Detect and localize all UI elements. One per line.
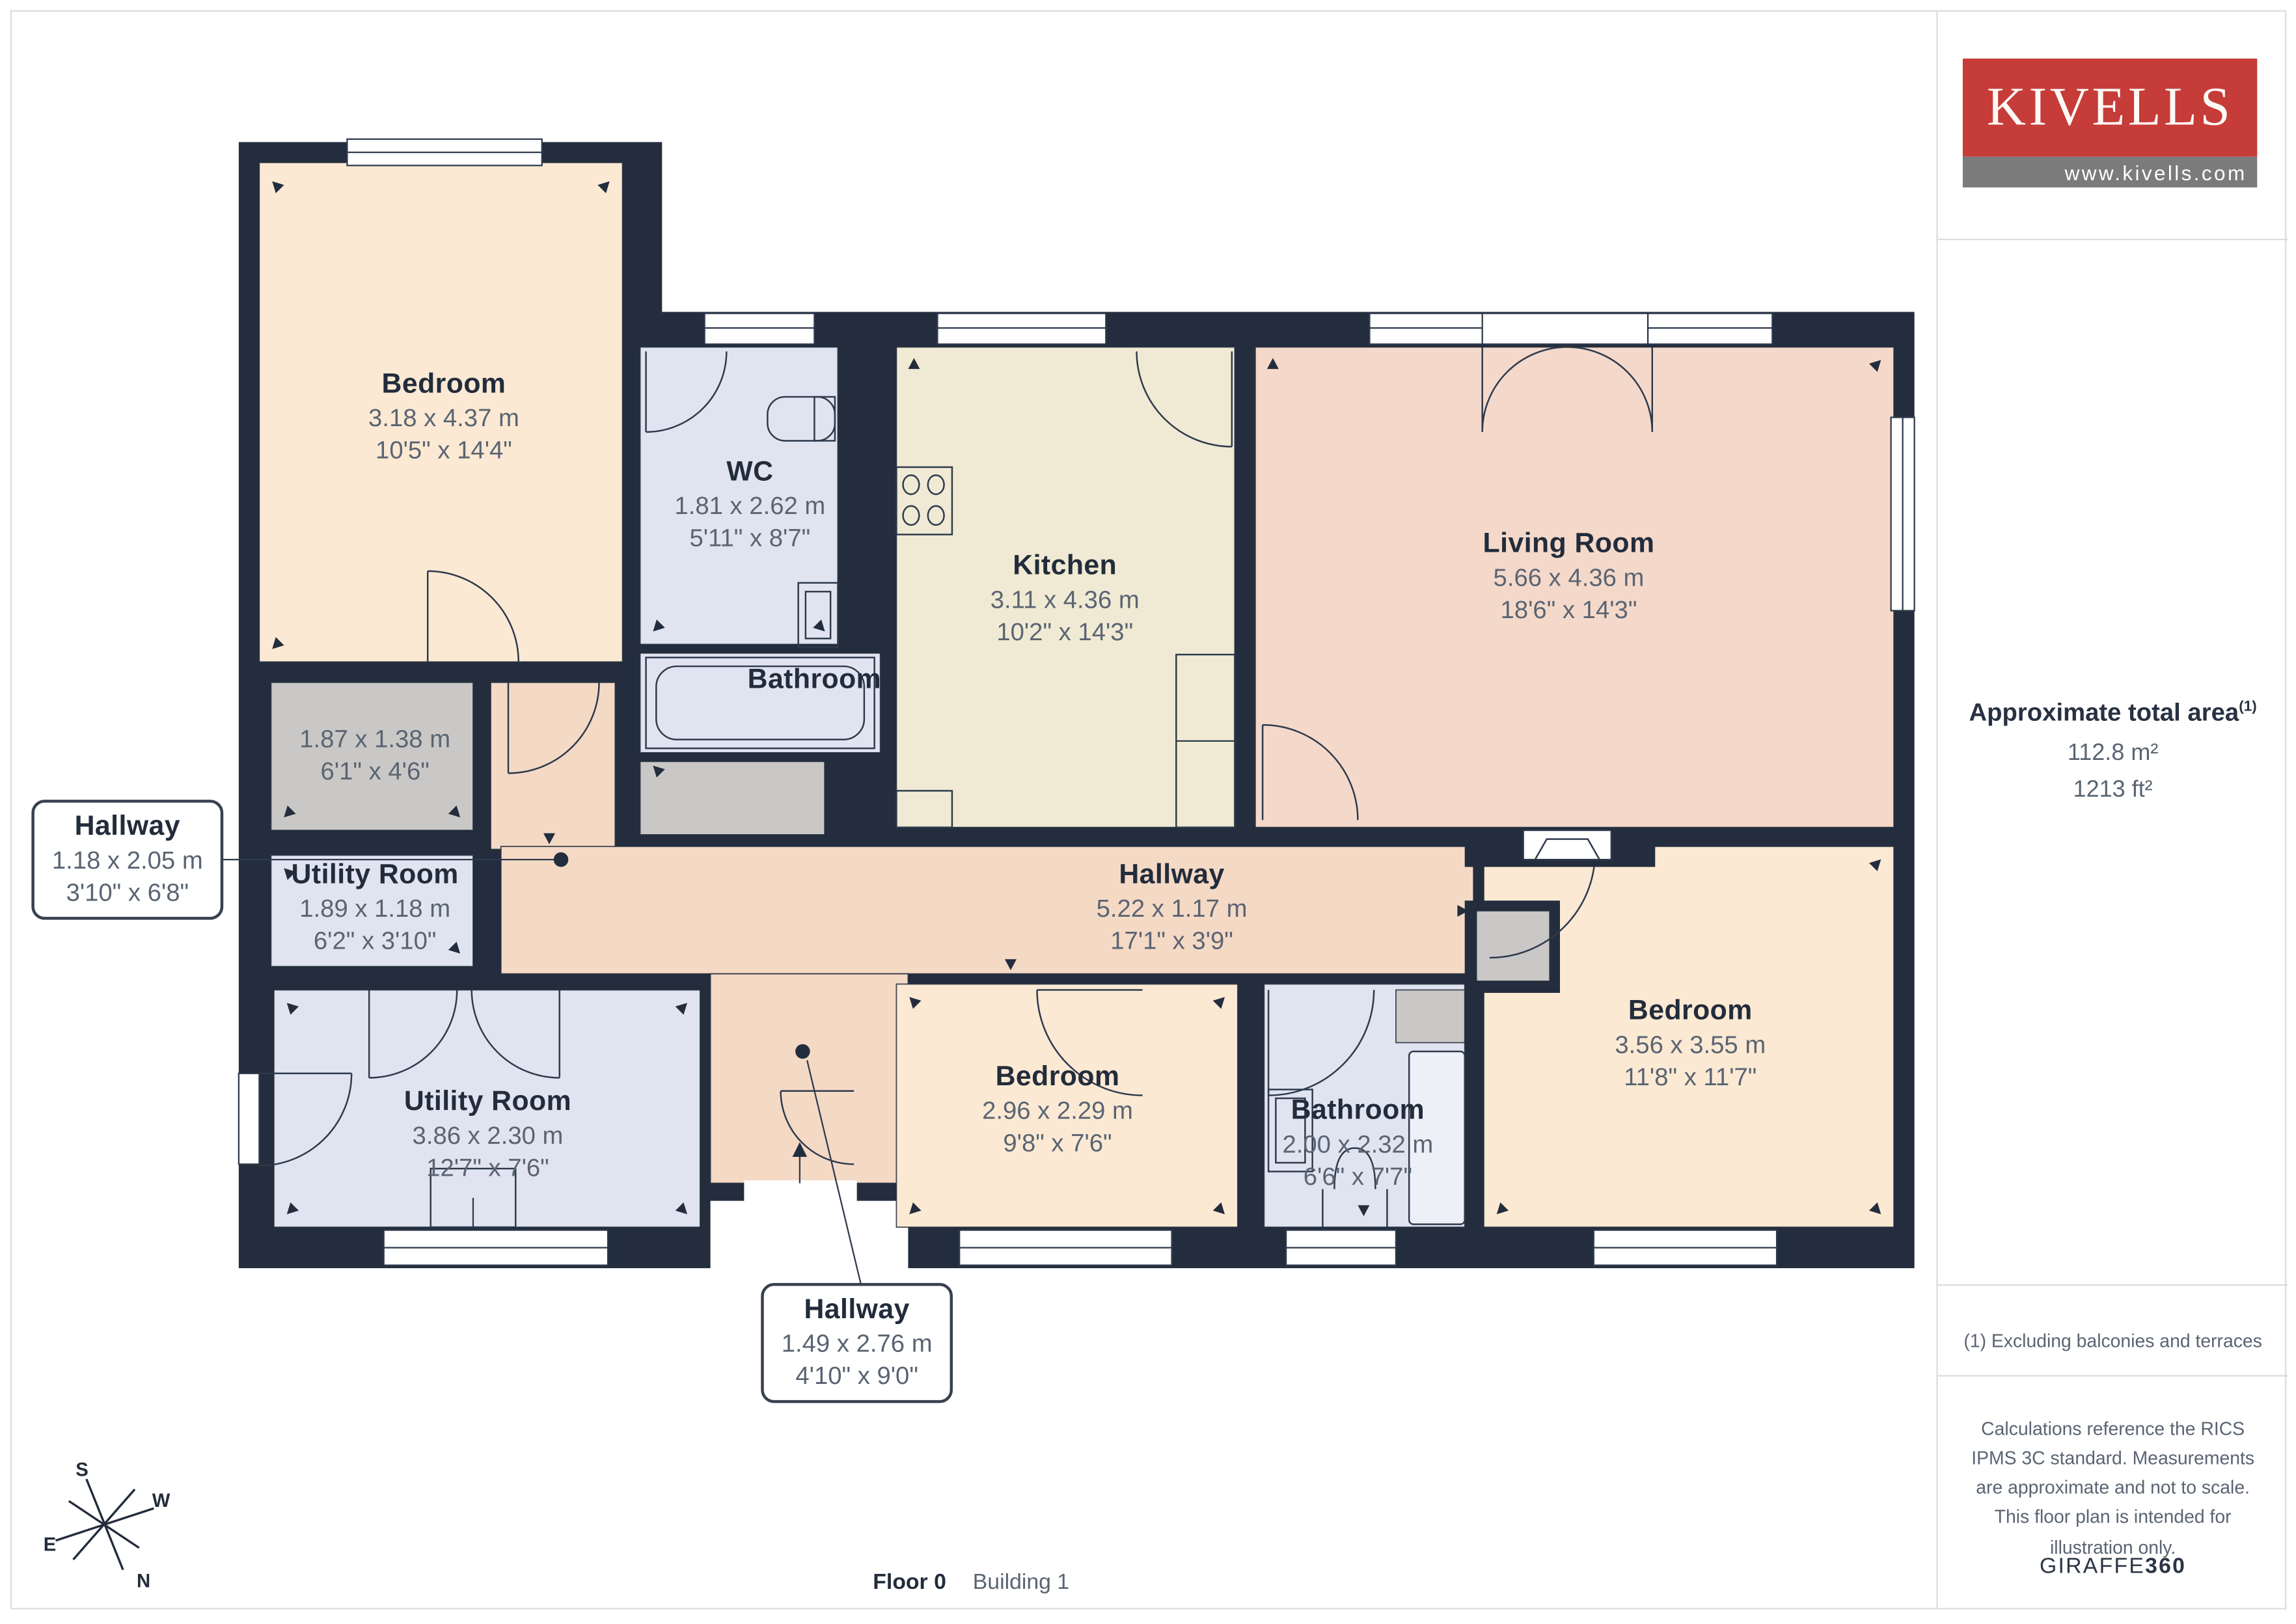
excluding-note: (1) Excluding balconies and terraces [1958, 1327, 2267, 1356]
room-label-bathroom-small: Bathroom [748, 663, 882, 699]
room-label-bedroom-center: Bedroom 2.96 x 2.29 m 9'8" x 7'6" [982, 1061, 1133, 1160]
fireplace-icon [1524, 830, 1611, 859]
sidebar: KIVELLS www.kivells.com Approximate tota… [1936, 12, 2286, 1608]
giraffe360-logo: GIRAFFE360 [1938, 1554, 2288, 1578]
building-label: Building 1 [973, 1570, 1069, 1595]
room-label-hallway-main: Hallway 5.22 x 1.17 m 17'1" x 3'9" [1097, 858, 1248, 958]
total-area-values: 112.8 m² 1213 ft² [1938, 737, 2288, 809]
brand-name: KIVELLS [1987, 76, 2233, 139]
room-label-wc: WC 1.81 x 2.62 m 5'11" x 8'7" [674, 455, 825, 555]
compass-s: S [75, 1460, 89, 1481]
sidebar-divider-1 [1938, 239, 2288, 240]
kivells-logo-red-box: KIVELLS [1963, 59, 2257, 157]
room-label-utility-big: Utility Room 3.86 x 2.30 m 12'7" x 7'6" [404, 1085, 571, 1185]
room-label-bedroom-right: Bedroom 3.56 x 3.55 m 11'8" x 11'7" [1615, 994, 1766, 1094]
total-area-block: Approximate total area(1) 112.8 m² 1213 … [1938, 699, 2288, 809]
french-door-gap [1483, 314, 1648, 344]
callout-hallway-bottom: Hallway 1.49 x 2.76 m 4'10" x 9'0" [761, 1283, 953, 1403]
footer: Floor 0 Building 1 [0, 1570, 1942, 1595]
entrance-door-gap [744, 1180, 856, 1204]
compass-w: W [152, 1491, 170, 1511]
calculations-note: Calculations reference the RICS IPMS 3C … [1958, 1414, 2267, 1562]
hallway-main-floor [501, 846, 1473, 974]
room-label-store: 1.87 x 1.38 m 6'1" x 4'6" [299, 724, 450, 787]
floor-label: Floor 0 [873, 1570, 946, 1595]
kivells-logo-url-bar: www.kivells.com [1963, 157, 2257, 187]
room-label-bedroom-topleft: Bedroom 3.18 x 4.37 m 10'5" x 14'4" [368, 368, 519, 467]
shower-icon [1396, 990, 1465, 1042]
kivells-logo: KIVELLS www.kivells.com [1963, 59, 2257, 187]
room-label-utility-small: Utility Room 1.89 x 1.18 m 6'2" x 3'10" [292, 858, 459, 958]
brand-url: www.kivells.com [2065, 160, 2247, 183]
compass-e: E [44, 1534, 57, 1555]
sidebar-divider-3 [1938, 1375, 2288, 1376]
area-ft2: 1213 ft² [1938, 773, 2288, 809]
room-label-kitchen: Kitchen 3.11 x 4.36 m 10'2" x 14'3" [991, 549, 1140, 649]
room-label-bathroom-right: Bathroom 2.00 x 2.32 m 6'6" x 7'7" [1282, 1094, 1433, 1193]
floorplan-page: Bedroom 3.18 x 4.37 m 10'5" x 14'4" WC 1… [0, 0, 2296, 1624]
hallway-vestibule-floor [711, 974, 909, 1184]
room-label-living: Living Room 5.66 x 4.36 m 18'6" x 14'3" [1483, 527, 1655, 627]
sidebar-divider-2 [1938, 1284, 2288, 1286]
area-m2: 112.8 m² [1938, 737, 2288, 773]
total-area-heading: Approximate total area(1) [1938, 699, 2288, 728]
room-store-middle-floor [640, 761, 825, 835]
callout-hallway-left: Hallway 1.18 x 2.05 m 3'10" x 6'8" [31, 800, 223, 919]
